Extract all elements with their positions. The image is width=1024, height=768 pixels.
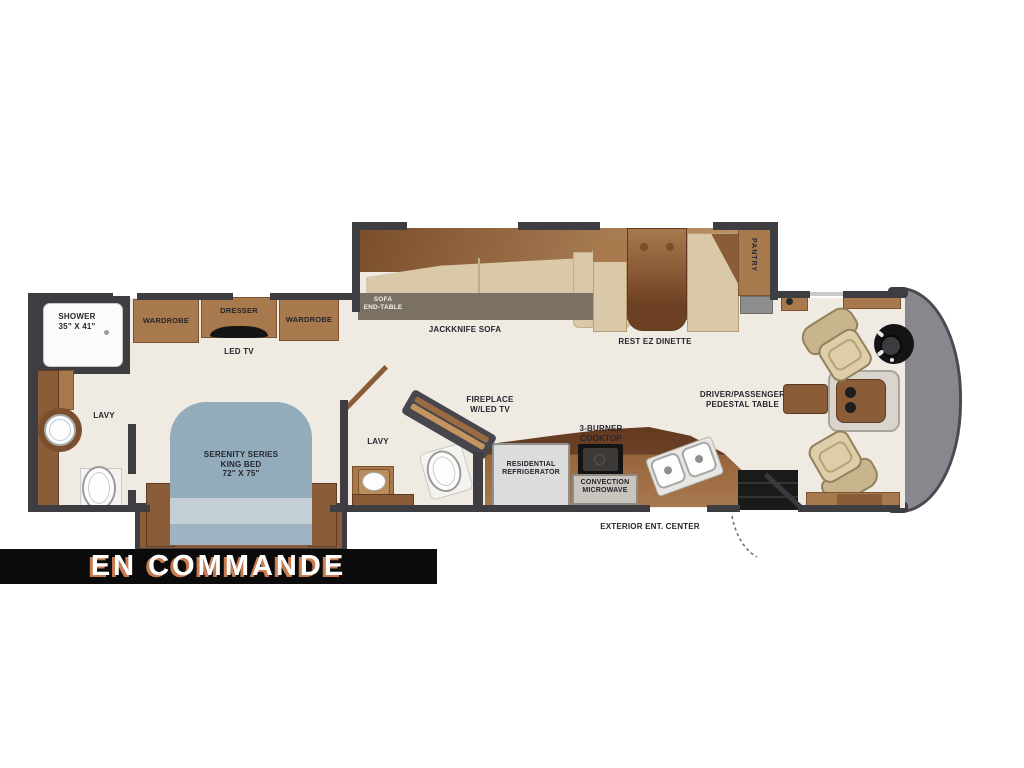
- king-bed-end: [170, 524, 312, 545]
- dinette-table: [627, 228, 687, 331]
- wardrobe-right-label: WARDROBE: [279, 315, 339, 324]
- cooktop-label: 3-BURNERCOOKTOP: [566, 424, 636, 443]
- mid-lavy-sink: [362, 472, 386, 491]
- refrigerator-label: RESIDENTIALREFRIGERATOR: [492, 461, 570, 478]
- slideout-wall-left: [352, 222, 360, 312]
- status-banner: EN COMMANDE: [0, 549, 437, 584]
- dresser-label: DRESSER: [201, 306, 277, 315]
- top-wall-4: [778, 291, 810, 298]
- rear-lavy-sink-ring: [49, 419, 71, 441]
- dinette-bench-right: [687, 233, 739, 332]
- slideout-wall-top-1: [352, 222, 407, 230]
- led-tv-icon: [210, 326, 268, 338]
- slideout-wall-top-3: [713, 222, 778, 230]
- rear-wall: [28, 293, 38, 512]
- shower: [36, 296, 130, 374]
- led-tv-label: LED TV: [208, 347, 270, 357]
- jackknife-sofa-label: JACKKNIFE SOFA: [400, 325, 530, 335]
- cab-window: [810, 292, 843, 296]
- slideout-wall-top-2: [518, 222, 600, 230]
- rear-lavy-label: LAVY: [80, 411, 128, 421]
- top-wall-3: [270, 293, 358, 300]
- console-table: [836, 379, 886, 423]
- steering-wheel: [874, 324, 914, 364]
- top-wall-5: [843, 291, 905, 298]
- slideout-wall-right: [770, 222, 778, 300]
- rear-toilet: [82, 466, 116, 510]
- nightstand-right: [308, 483, 337, 547]
- top-wall-2: [137, 293, 233, 300]
- king-bed-label: SERENITY SERIESKING BED72" X 75": [179, 450, 303, 479]
- status-banner-text: EN COMMANDE: [91, 550, 346, 583]
- microwave-label: CONVECTIONMICROWAVE: [572, 479, 638, 496]
- floorplan-page: SHOWER35" X 41" LAVY WARDROBE DRESSER LE…: [0, 0, 1024, 768]
- bottom-wall-2: [330, 505, 650, 512]
- cooktop: [578, 444, 623, 475]
- dinette-bench-left-top: [593, 240, 627, 262]
- pantry-base: [740, 296, 773, 314]
- king-bed-foot: [170, 498, 312, 524]
- shower-label: SHOWER35" X 41": [46, 312, 108, 331]
- bath-wall-2: [128, 490, 136, 512]
- door-swing-arc: [700, 500, 820, 570]
- pantry-label: PANTRY: [750, 238, 757, 272]
- mid-bath-wall: [340, 400, 348, 508]
- wardrobe-left-label: WARDROBE: [133, 316, 199, 325]
- sofa-end-table-label: SOFAEND-TABLE: [360, 296, 406, 312]
- kitchen-wall: [473, 452, 483, 508]
- bath-wall-1: [128, 424, 136, 474]
- pedestal-table: [783, 384, 828, 414]
- cab-cabinet-knob: [786, 298, 793, 305]
- cupholder-1: [845, 387, 856, 398]
- top-wall-1: [28, 293, 113, 300]
- mid-lavy-label: LAVY: [356, 437, 400, 447]
- fireplace-label: FIREPLACEW/LED TV: [445, 395, 535, 414]
- dinette-label: REST EZ DINETTE: [595, 337, 715, 347]
- cupholder-2: [845, 402, 856, 413]
